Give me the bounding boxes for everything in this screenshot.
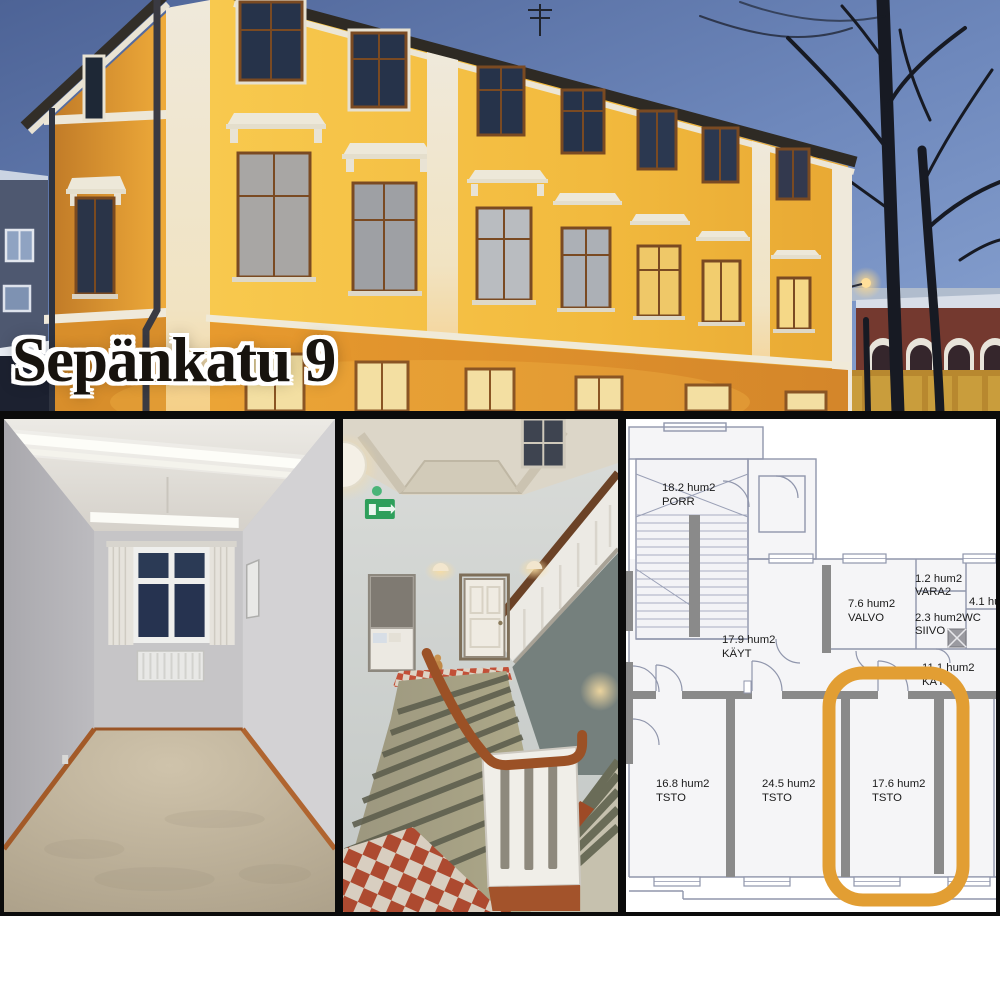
collage: Sepänkatu 9 — [0, 0, 1000, 1000]
room-label-tsto2-area: 24.5 hum2 — [762, 778, 815, 790]
room-label-kayt-area: 17.9 hum2 — [722, 634, 775, 646]
facade-pilaster — [427, 52, 458, 336]
landing-door — [461, 575, 509, 659]
stairwell-photo — [339, 415, 622, 916]
room-label-vara2-area: 1.2 hum2 — [915, 573, 962, 585]
address-title: Sepänkatu 9 — [12, 324, 335, 397]
room-label-wc-area: 2.3 hum2WC — [915, 612, 981, 624]
stairwell-photo-art — [343, 419, 618, 912]
room-label-porr-name: PORR — [662, 496, 695, 508]
street-lamp — [850, 267, 882, 299]
yellow-fence — [852, 370, 1000, 411]
room-label-tsto1-name: TSTO — [656, 792, 686, 804]
window — [106, 541, 236, 645]
wall-sconce — [518, 558, 550, 580]
radiator — [137, 651, 203, 681]
room-label-valvo-area: 7.6 hum2 — [848, 598, 895, 610]
room-label-wc-name: SIIVO — [915, 625, 945, 637]
room-label-valvo-name: VALVO — [848, 612, 884, 624]
alcove — [369, 575, 415, 671]
room-label-41-area: 4.1 hu — [969, 596, 996, 608]
room-label-porr-area: 18.2 hum2 — [662, 482, 715, 494]
wall-board — [247, 560, 259, 618]
wall-sconce — [425, 560, 457, 582]
plan-door-leaf — [744, 681, 751, 693]
floorplan-drawing: 18.2 hum2 PORR 17.9 hum2 KÄYT 7.6 hum2 V… — [626, 419, 996, 912]
stair-window — [522, 419, 564, 467]
plan-shaft — [948, 629, 966, 647]
facade-pilaster — [752, 141, 770, 360]
room-label-tsto1-area: 16.8 hum2 — [656, 778, 709, 790]
room-label-vara2-name: VARA2 — [915, 586, 951, 598]
empty-room-photo — [0, 415, 339, 916]
room-label-tsto3-area: 17.6 hum2 — [872, 778, 925, 790]
room-label-kayt-name: KÄYT — [722, 648, 752, 660]
room-label-tsto3-name: TSTO — [872, 792, 902, 804]
outlet — [62, 755, 68, 764]
floor-plan: 18.2 hum2 PORR 17.9 hum2 KÄYT 7.6 hum2 V… — [622, 415, 1000, 916]
building-exterior-photo: Sepänkatu 9 — [0, 0, 1000, 415]
room-photo-art — [4, 419, 335, 912]
room-label-tsto2-name: TSTO — [762, 792, 792, 804]
